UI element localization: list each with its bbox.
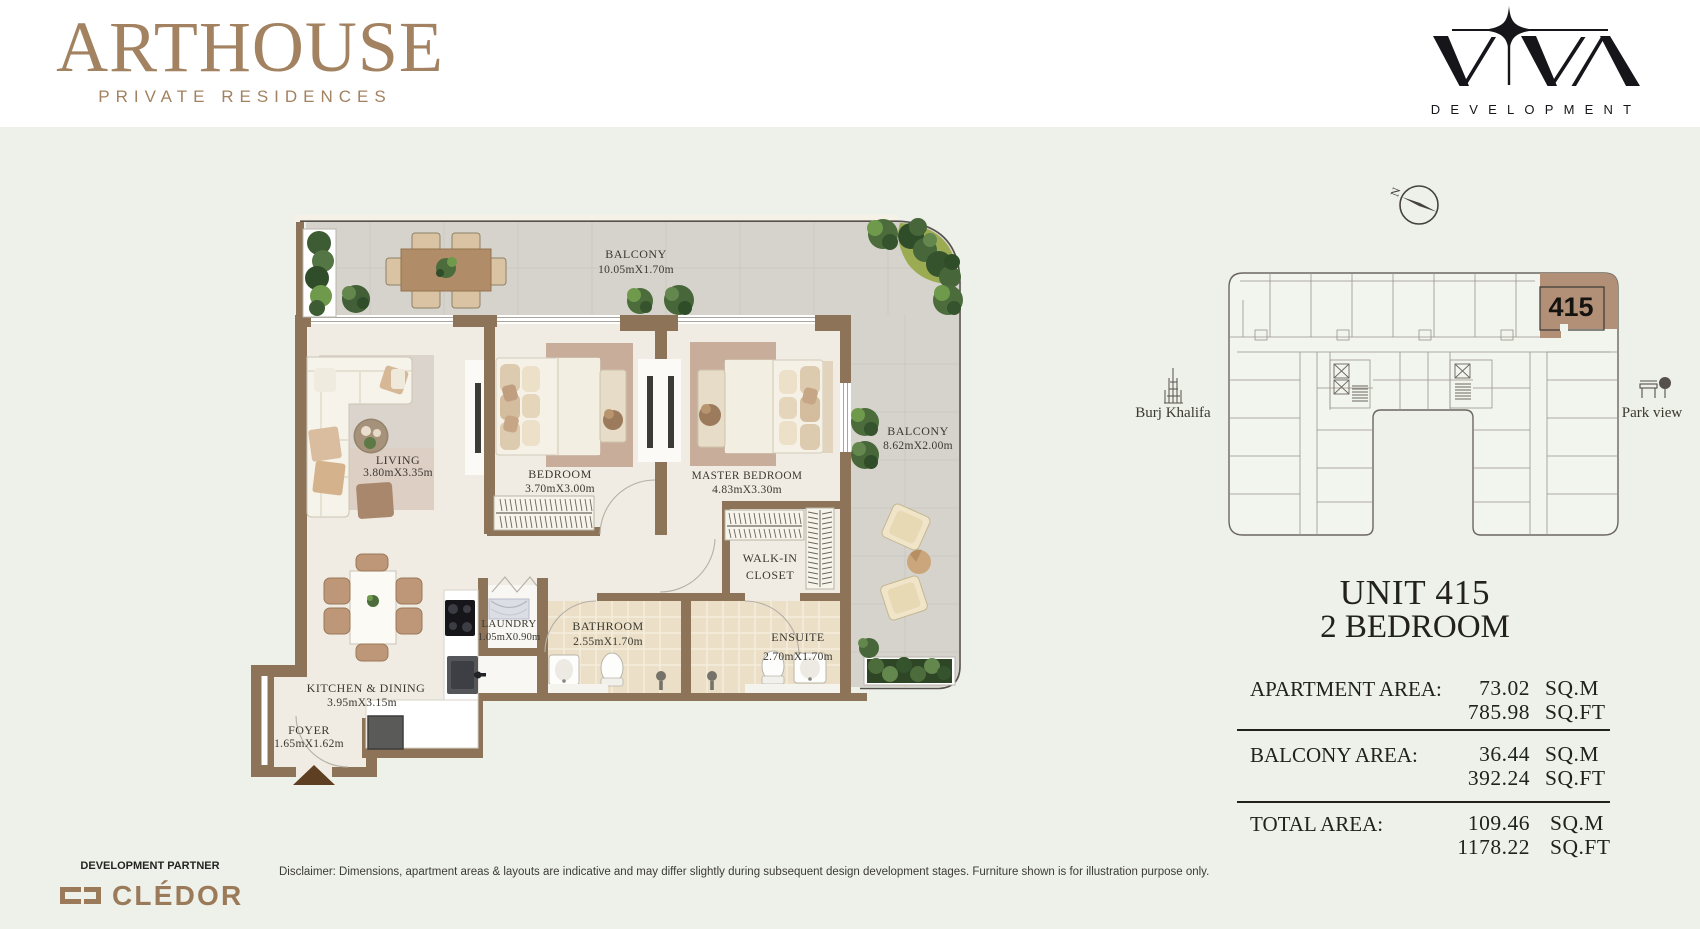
svg-text:N: N <box>1387 185 1403 198</box>
svg-text:BALCONY: BALCONY <box>605 247 667 261</box>
svg-text:LIVING: LIVING <box>376 453 420 467</box>
svg-text:CLOSET: CLOSET <box>746 568 795 582</box>
svg-text:3.80mX3.35m: 3.80mX3.35m <box>363 467 433 479</box>
svg-text:BALCONY: BALCONY <box>887 424 949 438</box>
svg-text:Burj Khalifa: Burj Khalifa <box>1135 405 1211 421</box>
svg-text:LAUNDRY: LAUNDRY <box>481 618 536 630</box>
svg-text:KITCHEN & DINING: KITCHEN & DINING <box>307 681 426 695</box>
svg-text:415: 415 <box>1548 292 1593 322</box>
svg-text:1.05mX0.90m: 1.05mX0.90m <box>478 632 541 643</box>
svg-text:BEDROOM: BEDROOM <box>528 467 592 481</box>
svg-text:Park view: Park view <box>1622 405 1683 421</box>
svg-text:BATHROOM: BATHROOM <box>572 619 643 633</box>
svg-text:1.65mX1.62m: 1.65mX1.62m <box>274 738 344 750</box>
svg-text:CLÉDOR: CLÉDOR <box>112 880 243 911</box>
svg-text:8.62mX2.00m: 8.62mX2.00m <box>883 440 953 452</box>
svg-text:ENSUITE: ENSUITE <box>771 630 825 644</box>
svg-text:FOYER: FOYER <box>288 723 330 737</box>
svg-text:2.70mX1.70m: 2.70mX1.70m <box>763 651 833 663</box>
svg-text:3.70mX3.00m: 3.70mX3.00m <box>525 483 595 495</box>
svg-text:3.95mX3.15m: 3.95mX3.15m <box>327 697 397 709</box>
svg-text:4.83mX3.30m: 4.83mX3.30m <box>712 484 782 496</box>
svg-text:2.55mX1.70m: 2.55mX1.70m <box>573 636 643 648</box>
svg-text:MASTER BEDROOM: MASTER BEDROOM <box>692 470 803 482</box>
svg-text:DEVELOPMENT: DEVELOPMENT <box>1431 102 1641 117</box>
svg-text:10.05mX1.70m: 10.05mX1.70m <box>598 264 674 276</box>
svg-text:WALK-IN: WALK-IN <box>743 551 798 565</box>
